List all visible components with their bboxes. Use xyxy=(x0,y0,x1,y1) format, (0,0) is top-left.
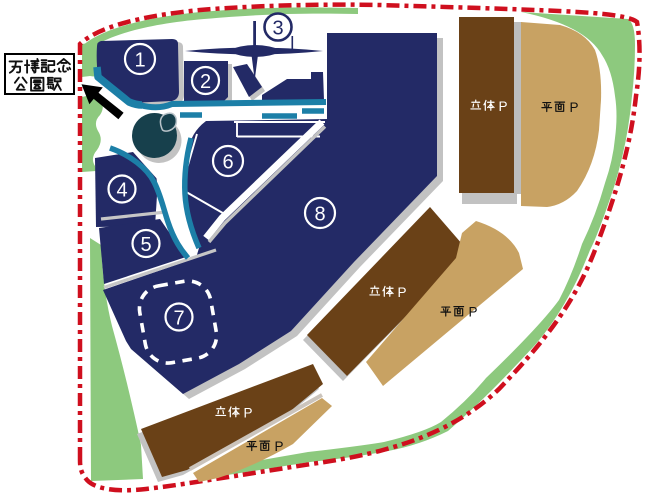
svg-text:8: 8 xyxy=(314,204,325,226)
svg-text:P: P xyxy=(244,406,253,421)
svg-text:4: 4 xyxy=(116,180,127,202)
svg-text:1: 1 xyxy=(134,50,145,72)
svg-text:7: 7 xyxy=(173,308,184,330)
svg-text:P: P xyxy=(570,100,579,115)
svg-text:5: 5 xyxy=(140,234,151,256)
svg-text:P: P xyxy=(469,305,478,320)
svg-text:3: 3 xyxy=(272,18,283,40)
svg-text:P: P xyxy=(398,285,407,300)
svg-text:2: 2 xyxy=(200,71,211,93)
svg-text:P: P xyxy=(275,439,284,454)
svg-text:P: P xyxy=(499,99,508,114)
svg-text:6: 6 xyxy=(222,152,233,174)
